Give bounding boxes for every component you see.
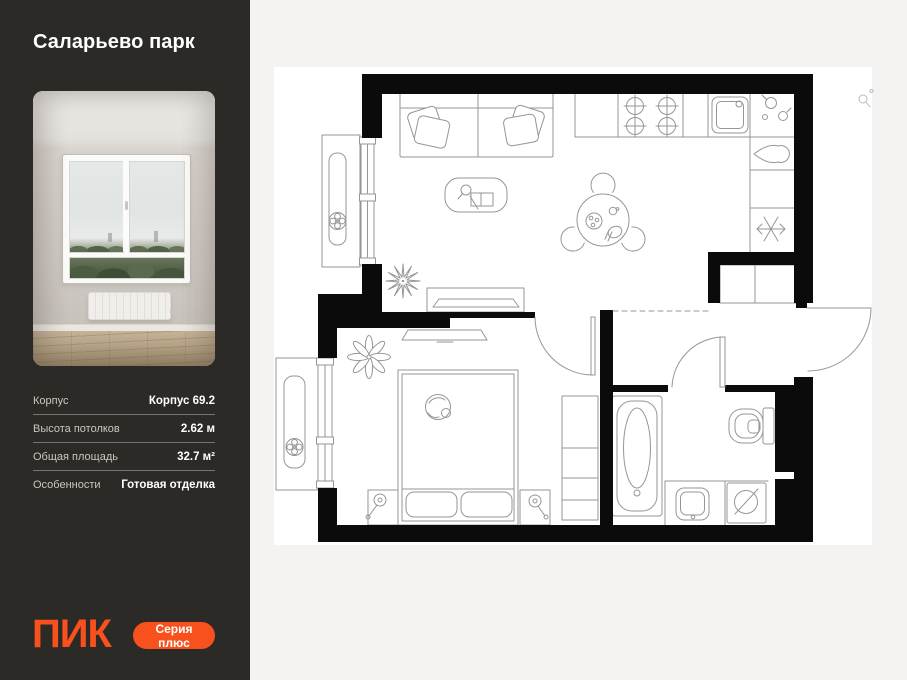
details-table: Корпус Корпус 69.2 Высота потолков 2.62 …	[33, 387, 215, 498]
detail-value: 32.7 м²	[177, 451, 215, 463]
detail-row-ceiling-height: Высота потолков 2.62 м	[33, 415, 215, 443]
dining-table	[577, 194, 629, 246]
pik-logo[interactable]: ПИК	[32, 612, 111, 657]
detail-label: Высота потолков	[33, 423, 120, 435]
closet	[720, 265, 796, 303]
nightstand-right	[520, 490, 550, 525]
tv-console	[427, 288, 524, 312]
detail-value: Корпус 69.2	[149, 395, 215, 407]
series-plus-button[interactable]: Серия плюс	[133, 622, 215, 649]
project-title: Саларьево парк	[33, 31, 223, 54]
toilet-icon	[729, 408, 774, 444]
detail-row-features: Особенности Готовая отделка	[33, 471, 215, 498]
photo-vignette	[33, 91, 215, 366]
wardrobe	[562, 396, 598, 520]
detail-label: Особенности	[33, 479, 101, 491]
balcony-bottom	[276, 358, 318, 490]
bathtub-icon	[612, 396, 662, 516]
page: { "page": { "bg": "#F4F3F1" }, "sidebar"…	[0, 0, 907, 680]
detail-label: Общая площадь	[33, 451, 118, 463]
window-bedroom	[317, 358, 334, 488]
detail-value: Готовая отделка	[121, 479, 215, 491]
balcony-top	[322, 135, 360, 267]
sidebar: Саларьево парк Корпус Корпус 69.2 Высота…	[0, 0, 250, 680]
floor-plan	[255, 55, 905, 555]
bed	[398, 370, 518, 525]
detail-value: 2.62 м	[181, 423, 215, 435]
washing-machine-icon	[727, 483, 766, 523]
nightstand-left	[366, 490, 398, 525]
window-living	[360, 137, 376, 265]
sofa	[400, 93, 553, 157]
bedroom-tv	[402, 330, 487, 342]
detail-label: Корпус	[33, 395, 68, 407]
detail-row-total-area: Общая площадь 32.7 м²	[33, 443, 215, 471]
kitchen-sink-icon	[712, 97, 748, 133]
bedroom-plant-icon	[348, 336, 391, 379]
detail-row-korpus: Корпус Корпус 69.2	[33, 387, 215, 415]
apartment-photo[interactable]	[33, 91, 215, 366]
washbasin-icon	[676, 488, 709, 520]
coffee-table	[445, 178, 507, 212]
